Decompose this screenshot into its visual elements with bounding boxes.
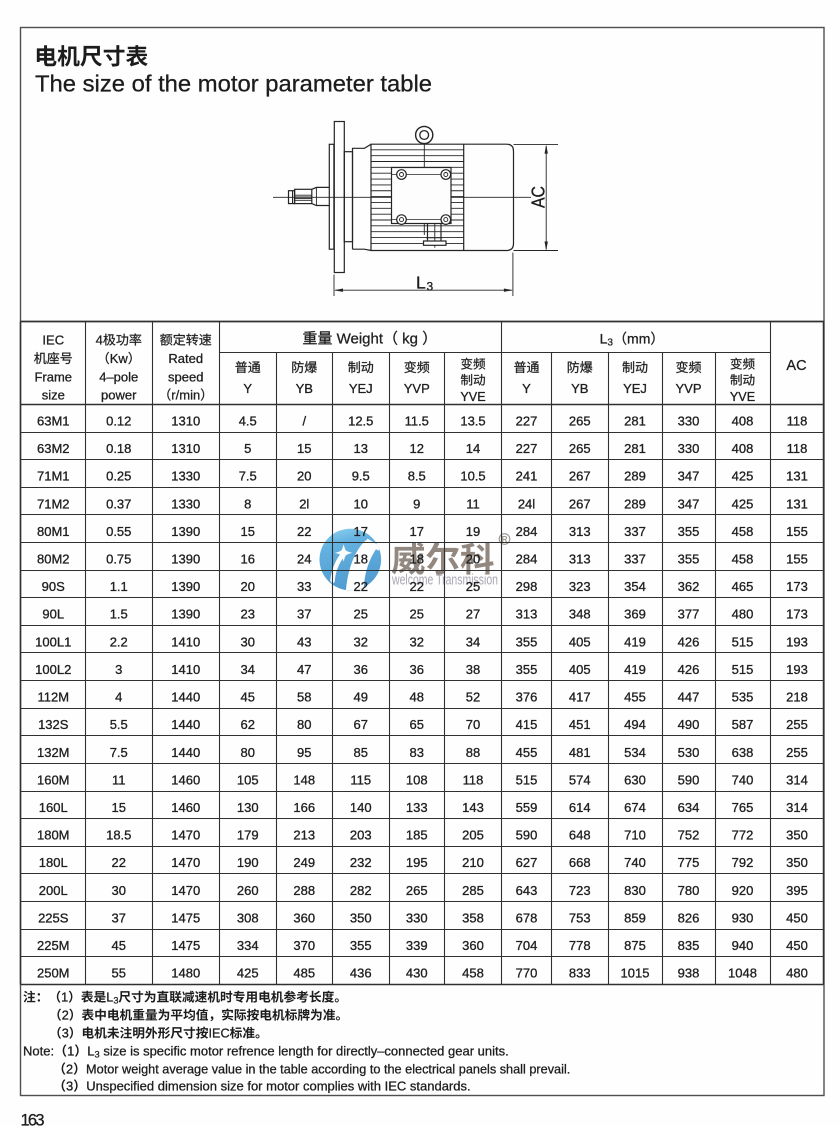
svg-text:11: 11 (112, 772, 126, 787)
svg-text:765: 765 (732, 800, 754, 815)
svg-text:YB: YB (571, 381, 588, 396)
svg-text:447: 447 (678, 690, 700, 705)
svg-text:451: 451 (569, 717, 591, 732)
svg-text:143: 143 (462, 800, 484, 815)
svg-text:90S: 90S (42, 579, 65, 594)
svg-text:627: 627 (516, 855, 538, 870)
svg-text:1475: 1475 (171, 938, 200, 953)
svg-text:AC: AC (529, 186, 549, 208)
svg-text:535: 535 (732, 690, 754, 705)
svg-text:376: 376 (516, 690, 538, 705)
svg-text:10.5: 10.5 (460, 469, 485, 484)
svg-text:225S: 225S (38, 910, 69, 925)
svg-text:17: 17 (354, 524, 368, 539)
svg-text:225M: 225M (37, 938, 70, 953)
svg-text:534: 534 (624, 745, 646, 760)
svg-text:369: 369 (624, 607, 646, 622)
svg-text:284: 284 (516, 551, 538, 566)
svg-text:34: 34 (466, 634, 480, 649)
svg-text:334: 334 (237, 938, 259, 953)
svg-text:speed: speed (168, 370, 203, 385)
svg-text:1048: 1048 (728, 966, 757, 981)
svg-text:37: 37 (297, 607, 311, 622)
svg-text:227: 227 (516, 441, 538, 456)
svg-text:778: 778 (569, 938, 591, 953)
svg-text:100L2: 100L2 (35, 662, 71, 677)
svg-text:8.5: 8.5 (408, 469, 426, 484)
svg-text:140: 140 (350, 800, 372, 815)
svg-text:Y: Y (243, 381, 252, 396)
svg-text:25: 25 (354, 607, 368, 622)
svg-text:780: 780 (678, 883, 700, 898)
svg-text:20: 20 (297, 469, 311, 484)
svg-text:10: 10 (354, 496, 368, 511)
svg-text:58: 58 (297, 690, 311, 705)
svg-text:0.55: 0.55 (106, 524, 131, 539)
svg-text:314: 314 (786, 800, 808, 815)
svg-text:kg: kg (402, 331, 418, 348)
svg-text:875: 875 (624, 938, 646, 953)
svg-text:255: 255 (786, 745, 808, 760)
svg-text:0.75: 0.75 (106, 551, 131, 566)
svg-text:1: 1 (67, 1044, 74, 1059)
svg-text:L: L (106, 991, 113, 1005)
svg-text:185: 185 (406, 828, 428, 843)
svg-text:285: 285 (462, 883, 484, 898)
svg-text:710: 710 (624, 828, 646, 843)
svg-text:337: 337 (624, 551, 646, 566)
svg-text:90L: 90L (42, 607, 64, 622)
svg-text:249: 249 (293, 855, 315, 870)
svg-text:32: 32 (410, 634, 424, 649)
svg-text:1390: 1390 (171, 607, 200, 622)
svg-text:1475: 1475 (171, 910, 200, 925)
svg-text:826: 826 (678, 910, 700, 925)
svg-text:The size of the motor paramete: The size of the motor parameter table (35, 71, 432, 97)
svg-text:938: 938 (678, 966, 700, 981)
svg-text:25: 25 (410, 607, 424, 622)
svg-text:740: 740 (732, 772, 754, 787)
svg-text:313: 313 (569, 524, 591, 539)
svg-text:3: 3 (113, 996, 118, 1006)
svg-text:132S: 132S (38, 717, 69, 732)
svg-text:282: 282 (350, 883, 372, 898)
svg-text:426: 426 (678, 634, 700, 649)
svg-text:/: / (302, 413, 306, 428)
svg-text:284: 284 (516, 524, 538, 539)
svg-text:4: 4 (96, 333, 103, 348)
svg-text:5: 5 (244, 441, 251, 456)
svg-text:648: 648 (569, 828, 591, 843)
svg-text:205: 205 (462, 828, 484, 843)
svg-text:Frame: Frame (34, 370, 72, 385)
svg-text:3: 3 (62, 1027, 69, 1041)
svg-text:24: 24 (297, 551, 311, 566)
svg-text:55: 55 (112, 966, 126, 981)
svg-text:455: 455 (624, 690, 646, 705)
svg-text:1410: 1410 (171, 662, 200, 677)
svg-text:458: 458 (732, 551, 754, 566)
svg-text:638: 638 (732, 745, 754, 760)
svg-text:1480: 1480 (171, 966, 200, 981)
svg-text:370: 370 (293, 938, 315, 953)
svg-text:9: 9 (413, 496, 420, 511)
svg-text:417: 417 (569, 690, 591, 705)
svg-text:481: 481 (569, 745, 591, 760)
svg-text:587: 587 (732, 717, 754, 732)
svg-text:241: 241 (516, 469, 538, 484)
svg-text:0.18: 0.18 (106, 441, 131, 456)
svg-text:Rated: Rated (168, 351, 203, 366)
svg-text:753: 753 (569, 910, 591, 925)
svg-text:22: 22 (354, 579, 368, 594)
svg-text:314: 314 (786, 772, 808, 787)
svg-text:348: 348 (569, 607, 591, 622)
svg-text:265: 265 (406, 883, 428, 898)
svg-text:30: 30 (112, 883, 126, 898)
svg-text:133: 133 (406, 800, 428, 815)
svg-text:940: 940 (732, 938, 754, 953)
svg-text:480: 480 (786, 966, 808, 981)
svg-text:426: 426 (678, 662, 700, 677)
svg-text:405: 405 (569, 634, 591, 649)
svg-text:15: 15 (241, 524, 255, 539)
svg-text:255: 255 (786, 717, 808, 732)
svg-text:313: 313 (569, 551, 591, 566)
svg-text:436: 436 (350, 966, 372, 981)
svg-text:450: 450 (786, 938, 808, 953)
svg-text:267: 267 (569, 469, 591, 484)
svg-text:265: 265 (569, 413, 591, 428)
svg-text:515: 515 (732, 662, 754, 677)
svg-text:130: 130 (237, 800, 259, 815)
svg-text:1330: 1330 (171, 469, 200, 484)
svg-text:350: 350 (350, 910, 372, 925)
svg-text:1.1: 1.1 (110, 579, 128, 594)
svg-text:37: 37 (112, 910, 126, 925)
svg-text:1: 1 (61, 991, 68, 1005)
svg-text:7.5: 7.5 (239, 469, 257, 484)
svg-text:0.12: 0.12 (106, 413, 131, 428)
svg-text:260: 260 (237, 883, 259, 898)
svg-text:88: 88 (466, 745, 480, 760)
svg-text:430: 430 (406, 966, 428, 981)
svg-text:355: 355 (516, 634, 538, 649)
svg-text:27: 27 (466, 607, 480, 622)
svg-text:347: 347 (678, 469, 700, 484)
svg-text:1310: 1310 (171, 413, 200, 428)
svg-text:770: 770 (516, 966, 538, 981)
svg-text:36: 36 (410, 662, 424, 677)
svg-text:112M: 112M (37, 690, 69, 705)
svg-text:358: 358 (462, 910, 484, 925)
svg-text:155: 155 (786, 551, 808, 566)
svg-text:63M2: 63M2 (37, 441, 70, 456)
svg-text:833: 833 (569, 966, 591, 981)
svg-text:704: 704 (516, 938, 538, 953)
svg-text:339: 339 (406, 938, 428, 953)
svg-text:2.2: 2.2 (110, 634, 128, 649)
svg-text:250M: 250M (37, 966, 70, 981)
svg-text:131: 131 (786, 469, 808, 484)
svg-text:678: 678 (516, 910, 538, 925)
svg-text:power: power (101, 388, 137, 403)
svg-text:115: 115 (350, 772, 371, 787)
svg-text:674: 674 (624, 800, 646, 815)
svg-text:377: 377 (678, 607, 700, 622)
svg-text:22: 22 (297, 524, 311, 539)
svg-text:355: 355 (350, 938, 372, 953)
svg-text:281: 281 (624, 441, 646, 456)
svg-text:Note:: Note: (23, 1044, 54, 1059)
svg-text:792: 792 (732, 855, 754, 870)
svg-text:YEJ: YEJ (623, 381, 647, 396)
svg-text:360: 360 (462, 938, 484, 953)
svg-text:118: 118 (787, 413, 808, 428)
svg-text:11: 11 (466, 496, 480, 511)
svg-text:132M: 132M (37, 745, 70, 760)
svg-text:835: 835 (678, 938, 700, 953)
svg-text:L: L (87, 1044, 94, 1059)
svg-text:Weight: Weight (337, 331, 384, 348)
svg-text:485: 485 (293, 966, 315, 981)
svg-text:1330: 1330 (171, 496, 200, 511)
svg-text:559: 559 (516, 800, 538, 815)
svg-text:772: 772 (732, 828, 754, 843)
svg-text:415: 415 (516, 717, 538, 732)
svg-text:288: 288 (293, 883, 315, 898)
svg-text:740: 740 (624, 855, 646, 870)
svg-text:80: 80 (241, 745, 255, 760)
svg-text:574: 574 (569, 772, 591, 787)
svg-text:YB: YB (296, 381, 313, 396)
svg-text:480: 480 (732, 607, 754, 622)
svg-text:L: L (416, 273, 426, 293)
svg-text:80M2: 80M2 (37, 551, 70, 566)
svg-text:355: 355 (678, 551, 700, 566)
svg-text:32: 32 (354, 634, 368, 649)
svg-text:16: 16 (241, 551, 255, 566)
svg-text:425: 425 (732, 496, 754, 511)
svg-text:1440: 1440 (171, 690, 200, 705)
svg-text:2: 2 (62, 1009, 69, 1023)
svg-text:47: 47 (297, 662, 311, 677)
svg-text:1015: 1015 (621, 966, 650, 981)
svg-text:67: 67 (354, 717, 368, 732)
svg-text:213: 213 (293, 828, 315, 843)
svg-text:775: 775 (678, 855, 700, 870)
svg-text:Y: Y (522, 381, 531, 396)
svg-text:22: 22 (410, 579, 424, 594)
svg-text:YVP: YVP (675, 381, 701, 396)
svg-text:Unspecified dimension size for: Unspecified dimension size for motor com… (86, 1079, 470, 1094)
svg-text:289: 289 (624, 496, 646, 511)
svg-text:5.5: 5.5 (110, 717, 128, 732)
svg-text:19: 19 (466, 524, 480, 539)
svg-text:3: 3 (66, 1079, 73, 1094)
svg-text:65: 65 (410, 717, 424, 732)
svg-text:71M1: 71M1 (37, 469, 70, 484)
svg-text:63M1: 63M1 (37, 413, 70, 428)
svg-text:355: 355 (678, 524, 700, 539)
svg-text:634: 634 (678, 800, 700, 815)
svg-text:33: 33 (297, 579, 311, 594)
svg-text:20: 20 (466, 551, 480, 566)
svg-text:18: 18 (410, 551, 424, 566)
svg-text:25: 25 (466, 579, 480, 594)
svg-text:45: 45 (112, 938, 126, 953)
svg-text:289: 289 (624, 469, 646, 484)
svg-text:23: 23 (241, 607, 255, 622)
svg-text:193: 193 (786, 634, 808, 649)
svg-text:450: 450 (786, 910, 808, 925)
svg-text:70: 70 (466, 717, 480, 732)
svg-text:193: 193 (786, 662, 808, 677)
svg-text:465: 465 (732, 579, 754, 594)
svg-text:4–pole: 4–pole (99, 370, 138, 385)
svg-text:43: 43 (297, 634, 311, 649)
svg-text:4: 4 (115, 690, 122, 705)
svg-text:118: 118 (463, 772, 484, 787)
svg-text:155: 155 (786, 524, 808, 539)
svg-text:668: 668 (569, 855, 591, 870)
svg-text:r/min: r/min (171, 388, 200, 403)
svg-text:2l: 2l (299, 496, 309, 511)
svg-text:643: 643 (516, 883, 538, 898)
svg-text:218: 218 (786, 690, 808, 705)
svg-text:425: 425 (732, 469, 754, 484)
svg-text:350: 350 (786, 855, 808, 870)
svg-text:195: 195 (406, 855, 428, 870)
svg-text:323: 323 (569, 579, 591, 594)
svg-text:14: 14 (466, 441, 480, 456)
svg-text:490: 490 (678, 717, 700, 732)
svg-text:100L1: 100L1 (35, 634, 71, 649)
svg-text:395: 395 (786, 883, 808, 898)
svg-text:515: 515 (516, 772, 538, 787)
svg-text:298: 298 (516, 579, 538, 594)
svg-text:13: 13 (354, 441, 368, 456)
svg-text:1470: 1470 (171, 855, 200, 870)
svg-text:337: 337 (624, 524, 646, 539)
svg-text:52: 52 (466, 690, 480, 705)
svg-text:530: 530 (678, 745, 700, 760)
svg-text:3: 3 (95, 1050, 100, 1060)
svg-text:Kw: Kw (110, 351, 129, 366)
svg-text:18: 18 (354, 551, 368, 566)
svg-text:190: 190 (237, 855, 259, 870)
svg-text:232: 232 (350, 855, 372, 870)
svg-text:360: 360 (293, 910, 315, 925)
svg-text:108: 108 (406, 772, 428, 787)
svg-text:930: 930 (732, 910, 754, 925)
svg-text:20: 20 (241, 579, 255, 594)
svg-text:590: 590 (678, 772, 700, 787)
svg-text:1460: 1460 (171, 800, 200, 815)
svg-text:49: 49 (354, 690, 368, 705)
svg-text:350: 350 (786, 828, 808, 843)
svg-text:1460: 1460 (171, 772, 200, 787)
svg-text:71M2: 71M2 (37, 496, 70, 511)
svg-text:9.5: 9.5 (352, 469, 370, 484)
svg-text:1410: 1410 (171, 634, 200, 649)
svg-text:YVP: YVP (404, 381, 430, 396)
svg-text:330: 330 (678, 441, 700, 456)
svg-text:419: 419 (624, 662, 646, 677)
svg-text:1470: 1470 (171, 828, 200, 843)
svg-text:354: 354 (624, 579, 646, 594)
svg-text:15: 15 (297, 441, 311, 456)
svg-text:0.25: 0.25 (106, 469, 131, 484)
svg-text:355: 355 (516, 662, 538, 677)
svg-text:24l: 24l (518, 496, 535, 511)
svg-text:200L: 200L (39, 883, 68, 898)
svg-text:330: 330 (406, 910, 428, 925)
svg-text:1310: 1310 (171, 441, 200, 456)
svg-text:12.5: 12.5 (348, 413, 373, 428)
svg-text:1470: 1470 (171, 883, 200, 898)
svg-text:Motor weight average value in: Motor weight average value in the table … (86, 1063, 570, 1077)
svg-text:1440: 1440 (171, 717, 200, 732)
svg-text:IEC: IEC (208, 1027, 229, 1041)
svg-text:3: 3 (607, 338, 613, 349)
svg-text:163: 163 (21, 1112, 45, 1126)
svg-text:8: 8 (244, 496, 251, 511)
svg-text:308: 308 (237, 910, 259, 925)
svg-text:131: 131 (786, 496, 808, 511)
svg-text:1390: 1390 (171, 579, 200, 594)
svg-text:173: 173 (786, 607, 808, 622)
svg-text:3: 3 (427, 280, 434, 294)
svg-text:YVE: YVE (730, 390, 755, 404)
svg-text:590: 590 (516, 828, 538, 843)
svg-text:size: size (42, 388, 65, 403)
svg-text:180L: 180L (39, 855, 68, 870)
svg-text:180M: 180M (37, 828, 70, 843)
svg-text:425: 425 (237, 966, 259, 981)
svg-text:330: 330 (678, 413, 700, 428)
svg-text:80: 80 (297, 717, 311, 732)
svg-text:173: 173 (786, 579, 808, 594)
svg-text:13.5: 13.5 (460, 413, 485, 428)
svg-text:45: 45 (241, 690, 255, 705)
svg-text:494: 494 (624, 717, 646, 732)
svg-text:265: 265 (569, 441, 591, 456)
svg-text:859: 859 (624, 910, 646, 925)
svg-text:458: 458 (462, 966, 484, 981)
svg-text:160L: 160L (39, 800, 68, 815)
svg-text:YEJ: YEJ (349, 381, 373, 396)
svg-text:362: 362 (678, 579, 700, 594)
svg-text:17: 17 (410, 524, 424, 539)
svg-text:15: 15 (112, 800, 126, 815)
svg-text:4.5: 4.5 (239, 413, 257, 428)
svg-text:455: 455 (516, 745, 538, 760)
svg-text:mm: mm (627, 331, 650, 347)
svg-text:7.5: 7.5 (110, 745, 128, 760)
svg-text:85: 85 (354, 745, 368, 760)
svg-text:614: 614 (569, 800, 591, 815)
svg-text:48: 48 (410, 690, 424, 705)
svg-text:166: 166 (293, 800, 315, 815)
svg-text:227: 227 (516, 413, 538, 428)
svg-text:281: 281 (624, 413, 646, 428)
svg-text:458: 458 (732, 524, 754, 539)
svg-text:752: 752 (678, 828, 700, 843)
svg-text:1390: 1390 (171, 551, 200, 566)
svg-text:630: 630 (624, 772, 646, 787)
svg-text:YVE: YVE (460, 390, 485, 404)
